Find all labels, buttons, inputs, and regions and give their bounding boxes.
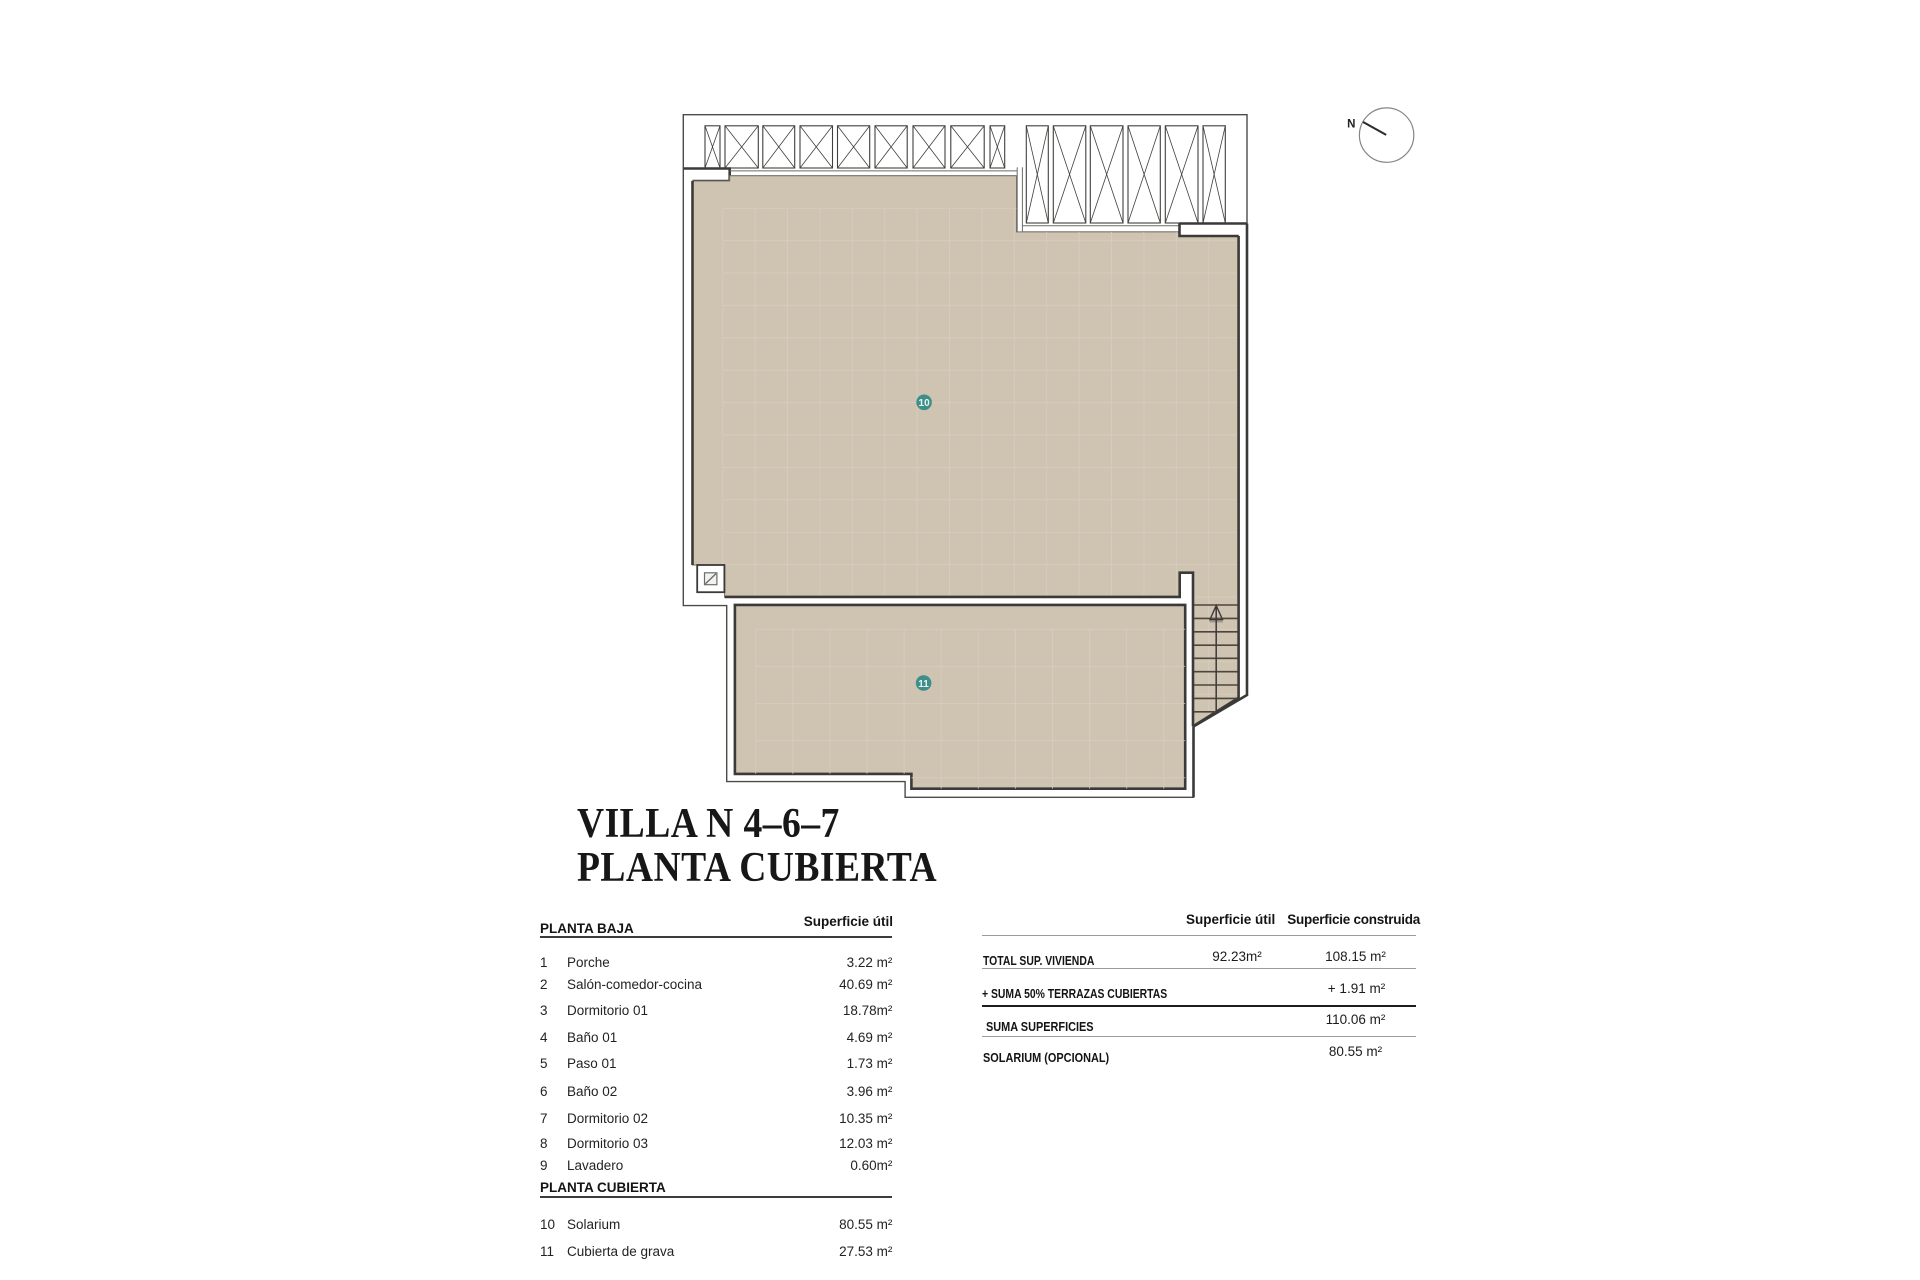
- svg-text:11: 11: [918, 679, 929, 690]
- svg-text:10: 10: [919, 398, 931, 409]
